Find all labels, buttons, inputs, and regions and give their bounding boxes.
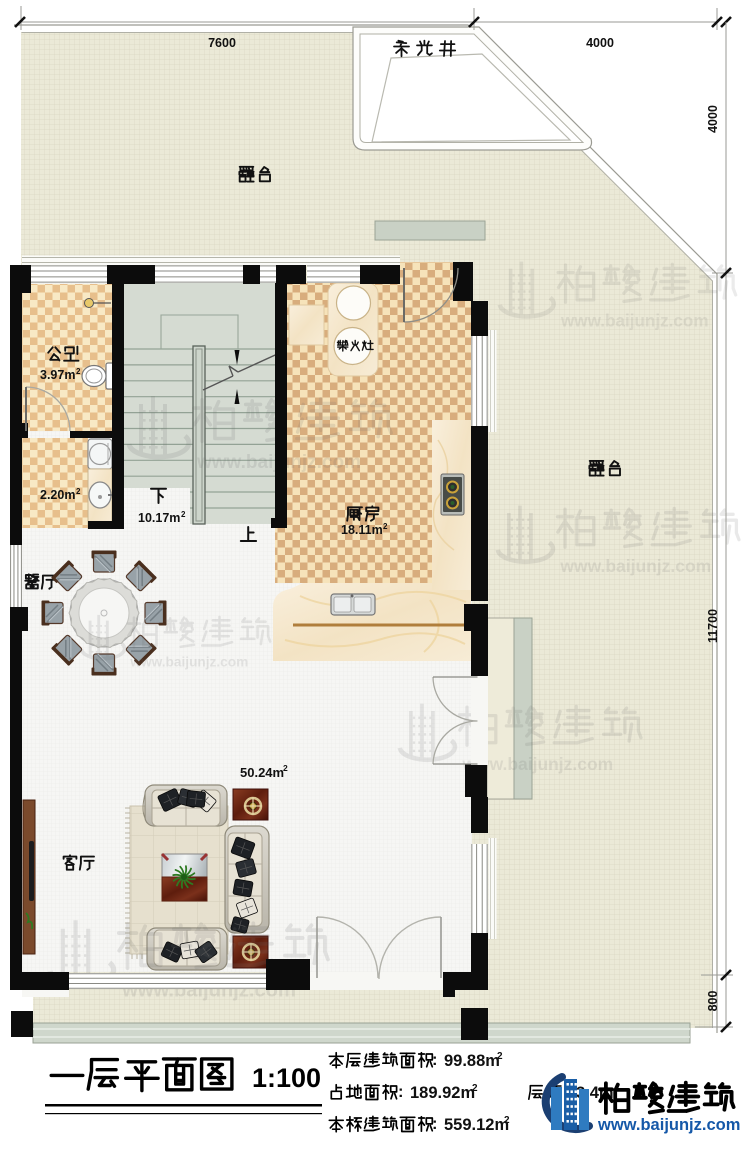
svg-text:www.baijunjz.com: www.baijunjz.com [129,655,248,670]
svg-text:559.12m: 559.12m [444,1116,509,1134]
svg-text:99.88m: 99.88m [444,1052,500,1070]
svg-text:2: 2 [76,367,81,376]
svg-text:2: 2 [383,522,388,531]
svg-text:2: 2 [283,763,288,773]
svg-text:www.baijunjz.com: www.baijunjz.com [560,311,709,330]
svg-text:50.24m: 50.24m [240,765,284,780]
svg-text:800: 800 [706,991,720,1012]
svg-text::: : [432,1051,438,1069]
svg-text:7600: 7600 [208,36,236,50]
svg-text:2: 2 [181,510,186,519]
svg-text::: : [432,1115,438,1133]
svg-text:11700: 11700 [706,609,720,643]
svg-text:2: 2 [472,1083,478,1094]
svg-text:10.17m: 10.17m [138,511,180,525]
svg-text::: : [398,1083,404,1101]
svg-text:2: 2 [504,1115,510,1126]
svg-text:2: 2 [497,1051,503,1062]
svg-text:www.baijunjz.com: www.baijunjz.com [597,1116,740,1134]
svg-text:18.11m: 18.11m [341,523,383,537]
svg-text:3.97m: 3.97m [40,368,75,382]
svg-text:1:100: 1:100 [252,1063,321,1093]
svg-text:4000: 4000 [586,36,614,50]
svg-text:www.baijunjz.com: www.baijunjz.com [559,556,711,576]
svg-text:2: 2 [76,487,81,496]
svg-text:4000: 4000 [706,105,720,133]
svg-text:2.20m: 2.20m [40,488,75,502]
svg-text:189.92m: 189.92m [410,1084,475,1102]
